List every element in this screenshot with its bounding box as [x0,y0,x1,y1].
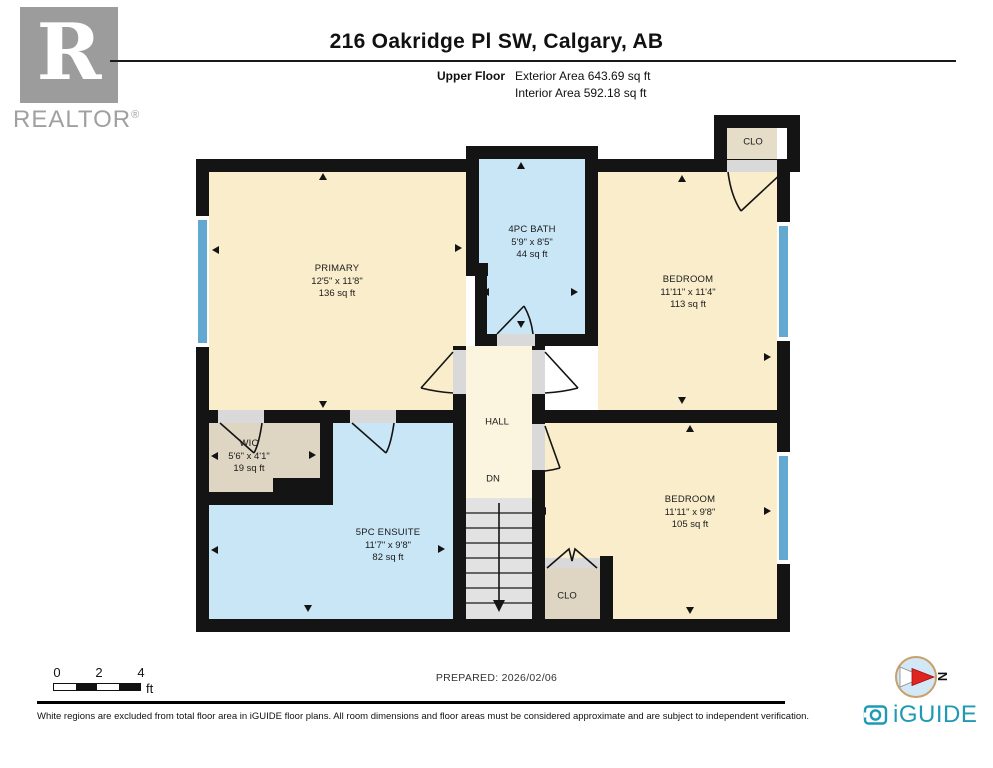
room-label-bath: 4PC BATH 5'9" x 8'5" 44 sq ft [508,224,555,262]
floor-plan-page: R REALTOR® 216 Oakridge Pl SW, Calgary, … [0,0,993,768]
footer-disclaimer: White regions are excluded from total fl… [37,711,797,722]
iguide-logo: iGUIDE [863,703,977,727]
prepared-date: PREPARED: 2026/02/06 [0,672,993,684]
compass-north-label: N [935,672,950,681]
room-label-primary: PRIMARY 12'5" x 11'8" 136 sq ft [311,263,362,301]
room-label-hall: HALL [485,417,509,428]
iguide-logo-text: iGUIDE [893,703,977,727]
room-label-ensuite: 5PC ENSUITE 11'7" x 9'8" 82 sq ft [356,527,421,565]
room-label-bedroom-top: BEDROOM 11'11" x 11'4" 113 sq ft [660,274,715,312]
room-label-closet-bottom: CLO [557,591,577,602]
room-label-closet-top: CLO [743,137,763,148]
room-label-bedroom-bottom: BEDROOM 11'11" x 9'8" 105 sq ft [665,494,716,532]
room-fills-layer [209,128,777,619]
iguide-camera-icon [863,703,889,727]
stairs-dn-label: DN [486,474,500,485]
compass-icon [893,654,941,702]
footer-divider [37,701,785,704]
room-label-wic: WIC 5'6" x 4'1" 19 sq ft [228,438,270,476]
scale-bar [53,683,141,691]
floor-plan-drawing [0,0,993,768]
